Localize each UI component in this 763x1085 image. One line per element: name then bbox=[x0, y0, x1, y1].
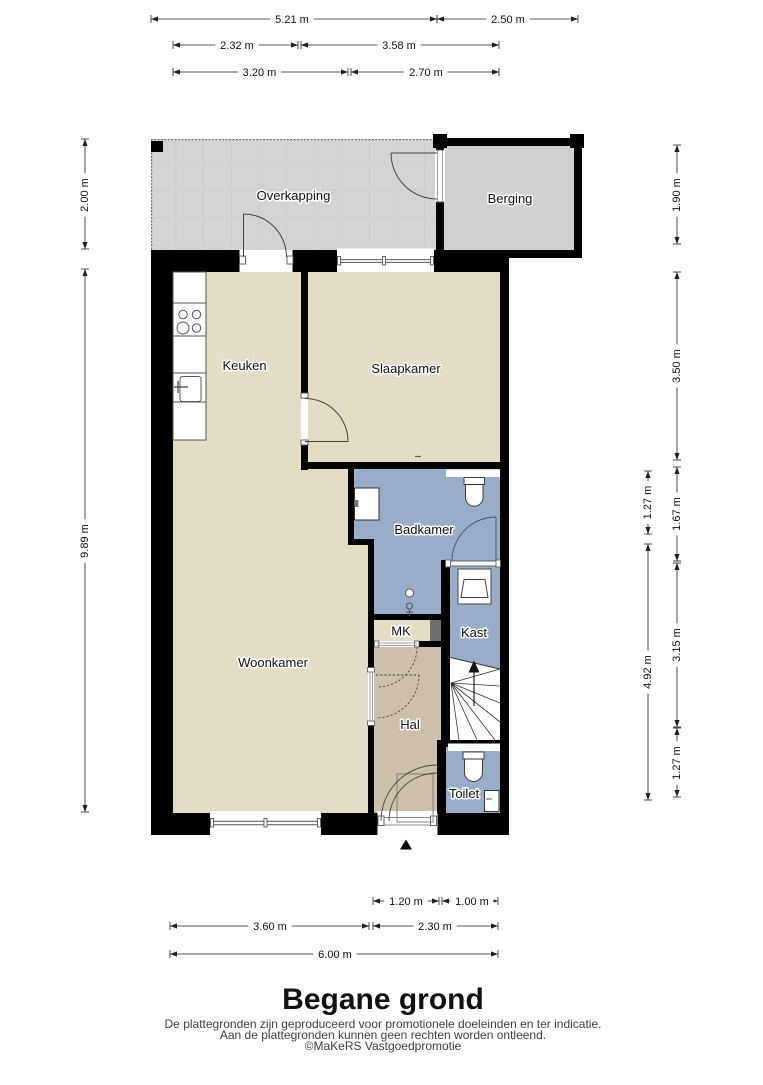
svg-text:3.60 m: 3.60 m bbox=[253, 921, 287, 933]
svg-text:1.90 m: 1.90 m bbox=[671, 178, 683, 212]
svg-text:2.32 m: 2.32 m bbox=[220, 40, 254, 52]
svg-text:MK: MK bbox=[391, 624, 411, 639]
svg-text:2.30 m: 2.30 m bbox=[418, 921, 452, 933]
svg-text:2.50 m: 2.50 m bbox=[491, 14, 525, 26]
svg-text:2.00 m: 2.00 m bbox=[79, 178, 91, 212]
svg-text:3.50 m: 3.50 m bbox=[671, 349, 683, 383]
svg-text:2.70 m: 2.70 m bbox=[409, 67, 443, 79]
svg-text:1.27 m: 1.27 m bbox=[671, 746, 683, 780]
svg-text:Woonkamer: Woonkamer bbox=[238, 655, 309, 670]
svg-text:9.89 m: 9.89 m bbox=[79, 524, 91, 558]
svg-text:6.00 m: 6.00 m bbox=[318, 949, 352, 961]
svg-text:Hal: Hal bbox=[400, 717, 420, 732]
svg-text:1.27 m: 1.27 m bbox=[642, 486, 654, 520]
svg-text:Slaapkamer: Slaapkamer bbox=[371, 361, 441, 376]
svg-text:Kast: Kast bbox=[461, 625, 487, 640]
svg-text:1.20 m: 1.20 m bbox=[389, 896, 423, 908]
svg-text:©MaKeRS Vastgoedpromotie: ©MaKeRS Vastgoedpromotie bbox=[305, 1039, 462, 1053]
svg-text:3.20 m: 3.20 m bbox=[243, 67, 277, 79]
svg-text:Keuken: Keuken bbox=[222, 358, 266, 373]
svg-text:4.92 m: 4.92 m bbox=[642, 655, 654, 689]
svg-text:1.00 m: 1.00 m bbox=[455, 896, 489, 908]
svg-text:Toilet: Toilet bbox=[449, 786, 480, 801]
svg-text:Overkapping: Overkapping bbox=[257, 188, 331, 203]
svg-text:5.21 m: 5.21 m bbox=[275, 14, 309, 26]
svg-text:Berging: Berging bbox=[488, 191, 533, 206]
svg-text:3.15 m: 3.15 m bbox=[671, 628, 683, 662]
svg-text:1.67 m: 1.67 m bbox=[671, 497, 683, 531]
svg-text:Badkamer: Badkamer bbox=[394, 522, 454, 537]
svg-text:3.58 m: 3.58 m bbox=[382, 40, 416, 52]
svg-text:Begane grond: Begane grond bbox=[282, 983, 484, 1016]
